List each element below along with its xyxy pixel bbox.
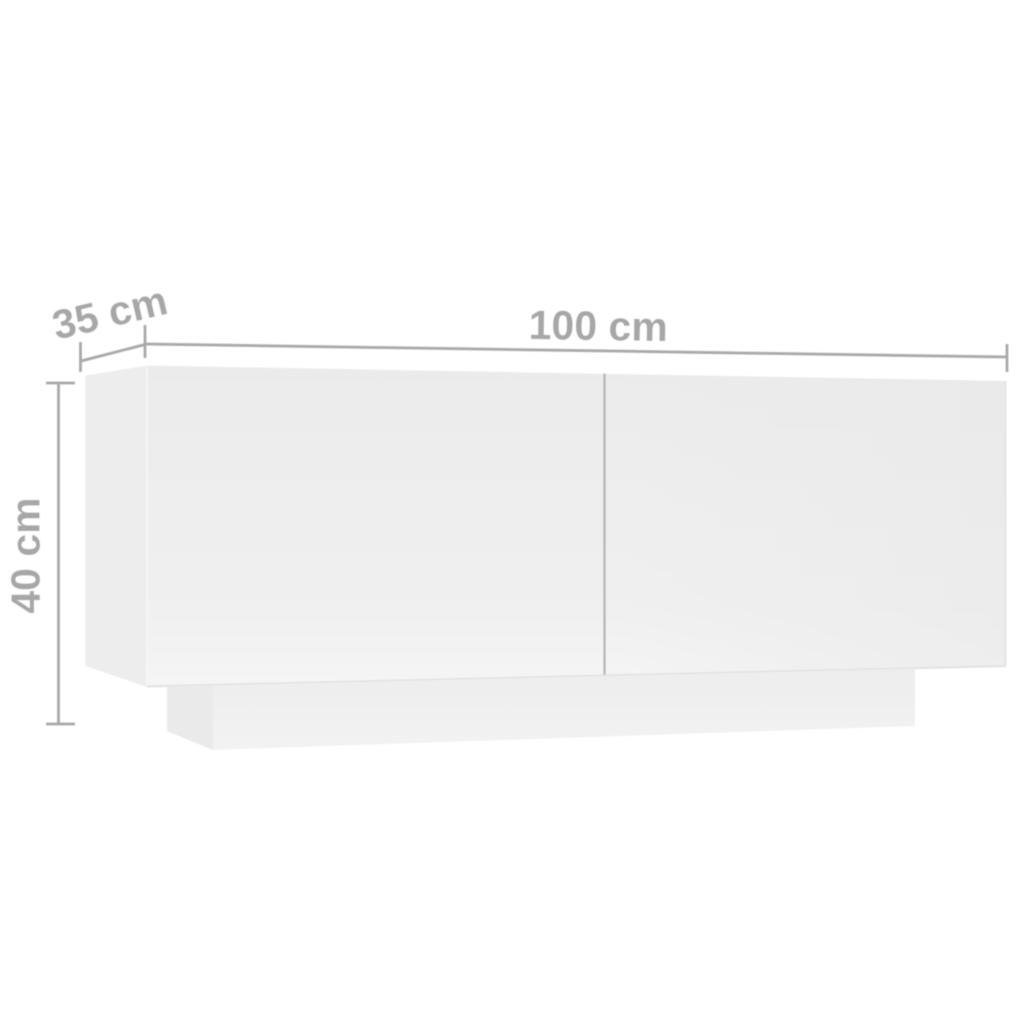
svg-text:100 cm: 100 cm [528,302,668,350]
svg-text:40 cm: 40 cm [3,497,49,613]
